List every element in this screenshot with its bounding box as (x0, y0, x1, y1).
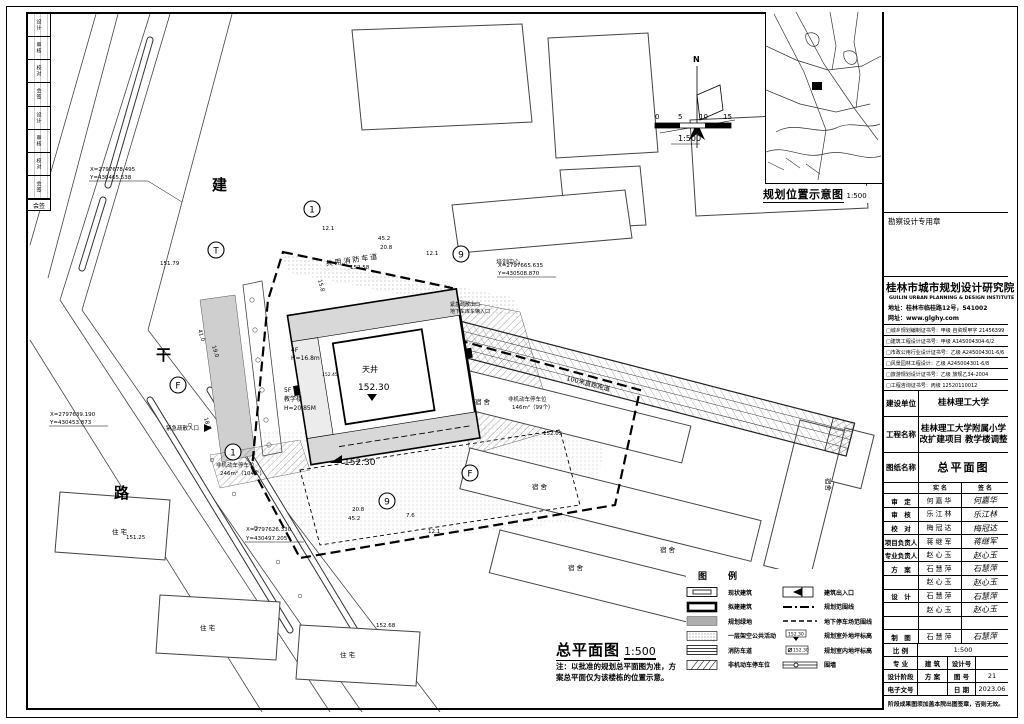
building-entrance-swatch (782, 586, 820, 598)
signature-row: 赵心玉赵心玉 (884, 576, 1008, 590)
plan-title: 总平面图 1:500 (556, 639, 656, 662)
signature-row: 校 对梅冠达梅冠达 (884, 522, 1008, 536)
legend-item: 152.30 规划室外地坪标高 (782, 629, 880, 644)
signature-row: 制 图石慧萍石慧萍 (884, 630, 1008, 643)
signature-row: 方 案石慧萍石慧萍 (884, 562, 1008, 576)
plan-title-text: 总平面图 (556, 639, 620, 662)
legend-title: 图 例 (698, 569, 880, 582)
sign-off-strip: 设计 审核 校对 会签 设计 审核 校对 会签 会签 (28, 14, 51, 211)
site-plan-sheet: { "frame": { "sign_strip_rows": ["设计","审… (0, 0, 1024, 724)
certificate-line: □旅游规划设计证书号：乙级 旅规乙34-2004 (884, 369, 1008, 380)
certificate-line: □风景园林工程设计：乙级 A245004301-6/8 (884, 358, 1008, 369)
location-map-title-text: 规划位置示意图 (763, 186, 844, 203)
svg-text:152.30: 152.30 (788, 632, 804, 638)
signature-row (884, 617, 1008, 631)
signature-row: 审 核乐江林乐江林 (884, 508, 1008, 522)
col-real-name: 实 名 (919, 483, 962, 493)
legend-item: 地下停车场范围线 (782, 614, 880, 629)
sheet-field: 图纸名称 总平面图 (884, 453, 1008, 483)
legend-item: 现状建筑 (686, 585, 782, 600)
institute-address: 地址：桂林市临桂路12号，541002 (886, 301, 1006, 312)
sign-strip-row: 会签 (28, 176, 50, 199)
col-signature: 签 名 (962, 483, 1008, 493)
location-map-title: 规划位置示意图 1:500 (763, 186, 882, 203)
sign-strip-row: 设计 (28, 107, 50, 130)
sheet-value: 总平面图 (919, 453, 1008, 482)
planning-boundary-swatch (782, 601, 820, 613)
certificate-list: □城乡规划编制证书号：甲级 自资规甲字 21456399 □建筑工程设计证书号：… (884, 325, 1008, 391)
legend-item: 围墙 (782, 658, 880, 673)
existing-building-swatch (686, 586, 724, 598)
location-map-scale: 1:500 (847, 192, 867, 200)
signature-row: 专业负责人赵心玉赵心玉 (884, 549, 1008, 563)
sign-strip-row: 审核 (28, 37, 50, 60)
sign-strip-footer: 会签 (28, 199, 50, 210)
title-block: 勘察设计专用章 桂林市城市规划设计研究院 GUILIN URBAN PLANNI… (882, 12, 1008, 710)
legend-item: 拟建建筑 (686, 600, 782, 615)
legend-item: 非机动车停车位 (686, 658, 782, 673)
project-field: 工程名称 桂林理工大学附属小学 改扩建项目 教学楼调整 (884, 417, 1008, 453)
proposed-building-swatch (686, 601, 724, 613)
certificate-line: □工程咨询证书号：丙级 12520110012 (884, 380, 1008, 390)
certificate-line: □市政公用行业设计证书号：乙级 A245004301-6/6 (884, 347, 1008, 358)
signature-table: 实 名 签 名 审 定何嘉华何嘉华 审 核乐江林乐江林 校 对梅冠达梅冠达 项目… (884, 483, 1008, 644)
outdoor-elevation-swatch: 152.30 (782, 629, 820, 642)
legend: 图 例 现状建筑 建筑出入口 拟建建筑 规划范围线 规划绿地 地下停车场范围线 … (686, 569, 880, 672)
indoor-elevation-swatch: 152.30 (782, 644, 820, 657)
bike-parking-swatch (686, 659, 724, 671)
sign-strip-row: 设计 (28, 14, 50, 37)
sign-strip-row: 校对 (28, 153, 50, 176)
scale-row: 比 例 1:500 (884, 644, 1008, 657)
legend-item: 152.30 规划室内地坪标高 (782, 643, 880, 658)
green-space-swatch (686, 615, 724, 627)
stage-row: 设计阶段 方 案 图 号 21 (884, 670, 1008, 683)
svg-text:152.30: 152.30 (793, 647, 809, 653)
major-row: 专 业 建 筑 设计号 (884, 657, 1008, 670)
legend-item: 一层架空公共活动 (686, 629, 782, 644)
signature-row: 审 定何嘉华何嘉华 (884, 494, 1008, 508)
underground-parking-swatch (782, 615, 820, 627)
plan-note: 注：以批准的规划总平面图为准，方 案总平面仅为该楼栋的位置示意。 (556, 661, 676, 684)
institute-website: 网址：www.glghy.com (886, 312, 1006, 322)
fire-lane-swatch (686, 644, 724, 656)
signature-row: 赵心玉赵心玉 (884, 603, 1008, 617)
stamp-space (884, 12, 1008, 213)
legend-item: 建筑出入口 (782, 585, 880, 600)
location-map (765, 12, 882, 184)
signature-row: 项目负责人蒋继军蒋继军 (884, 535, 1008, 549)
docno-row: 电子文号 日 期 2023.06 (884, 683, 1008, 696)
owner-field: 建设单位 桂林理工大学 (884, 391, 1008, 417)
institute-name-cn: 桂林市城市规划设计研究院 (886, 280, 1006, 295)
legend-item: 规划范围线 (782, 600, 880, 615)
sign-strip-row: 审核 (28, 130, 50, 153)
sign-strip-row: 校对 (28, 60, 50, 83)
survey-stamp-cell: 勘察设计专用章 (884, 213, 1008, 277)
certificate-line: □建筑工程设计证书号：甲级 A145004304-6/2 (884, 336, 1008, 347)
signature-row: 设 计石慧萍石慧萍 (884, 590, 1008, 604)
legend-item: 规划绿地 (686, 614, 782, 629)
institute-header: 桂林市城市规划设计研究院 GUILIN URBAN PLANNING & DES… (884, 277, 1008, 325)
institute-name-en: GUILIN URBAN PLANNING & DESIGN INSTITUTE (889, 296, 1003, 302)
project-label: 工程名称 (884, 417, 919, 452)
wall-swatch (782, 659, 820, 671)
certificate-line: □城乡规划编制证书号：甲级 自资规甲字 21456399 (884, 325, 1008, 336)
elevated-public-swatch (686, 630, 724, 642)
plan-title-scale: 1:500 (624, 645, 656, 660)
legend-item: 消防车道 (686, 643, 782, 658)
sheet-label: 图纸名称 (884, 453, 919, 482)
location-map-sketch (766, 12, 881, 181)
owner-label: 建设单位 (884, 391, 919, 416)
project-value: 桂林理工大学附属小学 改扩建项目 教学楼调整 (919, 417, 1008, 452)
sign-strip-row: 会签 (28, 83, 50, 106)
owner-value: 桂林理工大学 (919, 391, 1008, 416)
title-block-footer-note: 阶段成果图须加盖本院出图签章，否则无效。 (884, 696, 1008, 710)
